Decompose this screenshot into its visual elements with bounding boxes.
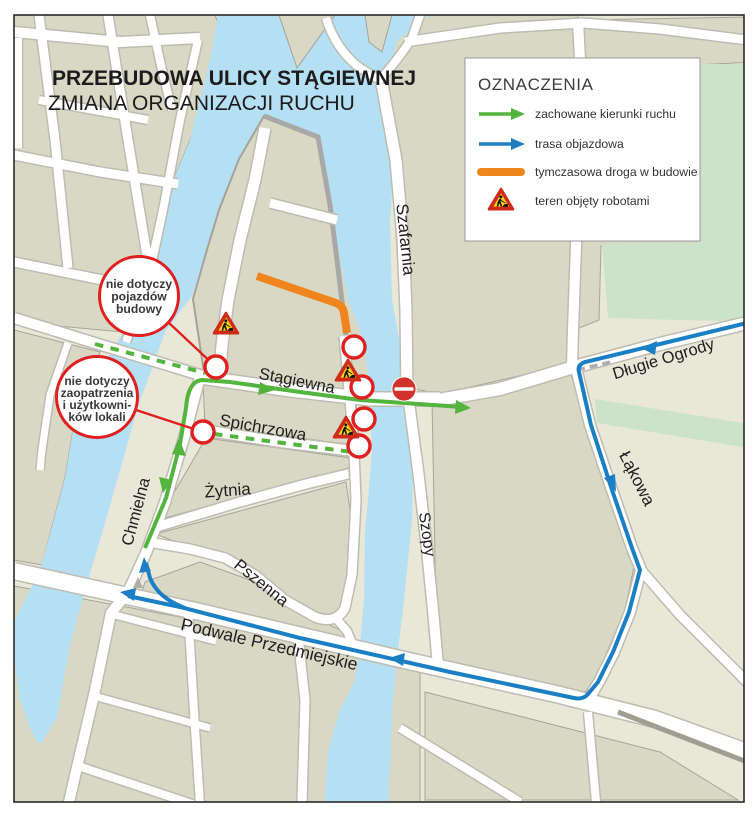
svg-text:Żytnia: Żytnia: [204, 479, 252, 501]
svg-text:PRZEBUDOWA ULICY STĄGIEWNEJ: PRZEBUDOWA ULICY STĄGIEWNEJ: [52, 67, 416, 90]
svg-text:trasa objazdowa: trasa objazdowa: [535, 137, 624, 151]
svg-text:ków lokali: ków lokali: [68, 410, 125, 424]
svg-text:budowy: budowy: [116, 302, 162, 316]
svg-text:tymczasowa droga w budowie: tymczasowa droga w budowie: [535, 165, 698, 179]
svg-text:ZMIANA ORGANIZACJI RUCHU: ZMIANA ORGANIZACJI RUCHU: [48, 92, 355, 115]
svg-text:teren objęty robotami: teren objęty robotami: [535, 194, 650, 208]
svg-text:OZNACZENIA: OZNACZENIA: [478, 75, 594, 94]
svg-text:zachowane kierunki ruchu: zachowane kierunki ruchu: [535, 107, 676, 121]
